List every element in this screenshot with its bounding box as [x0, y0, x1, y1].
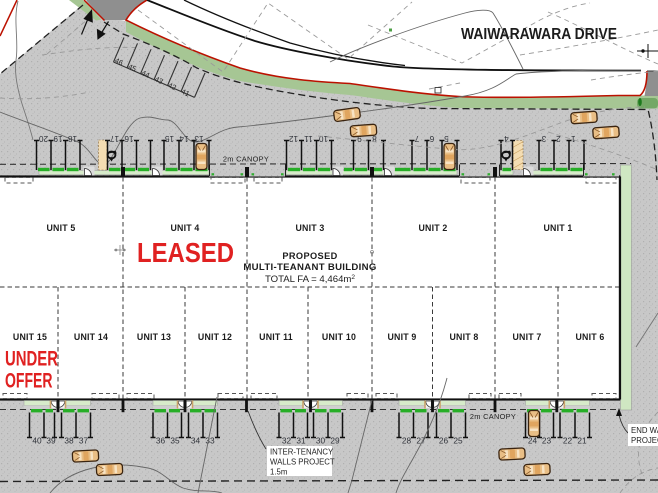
svg-text:30: 30 — [316, 436, 326, 446]
svg-text:13: 13 — [194, 134, 204, 143]
svg-text:6: 6 — [429, 134, 434, 143]
svg-text:UNIT 6: UNIT 6 — [575, 332, 604, 342]
svg-text:37: 37 — [79, 436, 89, 446]
svg-text:17: 17 — [110, 134, 120, 143]
svg-text:23: 23 — [542, 436, 552, 446]
svg-text:INTER-TENANCY: INTER-TENANCY — [270, 448, 334, 457]
svg-text:40: 40 — [32, 436, 42, 446]
svg-text:UNIT 5: UNIT 5 — [46, 223, 75, 233]
svg-text:19: 19 — [53, 134, 63, 143]
svg-text:31: 31 — [296, 436, 306, 446]
svg-text:16: 16 — [124, 134, 134, 143]
svg-text:10: 10 — [319, 134, 329, 143]
svg-text:5: 5 — [444, 134, 449, 143]
svg-text:UNIT 13: UNIT 13 — [137, 332, 171, 342]
svg-text:11: 11 — [304, 134, 313, 143]
svg-text:WAIWARAWARA DRIVE: WAIWARAWARA DRIVE — [461, 26, 617, 43]
svg-text:WALLS PROJECT: WALLS PROJECT — [270, 458, 335, 467]
svg-text:1: 1 — [571, 134, 576, 143]
svg-text:7: 7 — [414, 134, 419, 143]
svg-text:14: 14 — [179, 134, 189, 143]
svg-text:38: 38 — [64, 436, 74, 446]
svg-text:35: 35 — [170, 436, 180, 446]
svg-text:22: 22 — [563, 436, 573, 446]
svg-text:29: 29 — [330, 436, 340, 446]
svg-text:18: 18 — [68, 134, 78, 143]
svg-text:UNIT 7: UNIT 7 — [512, 332, 541, 342]
svg-text:1.5m: 1.5m — [270, 468, 287, 477]
svg-text:LEASED: LEASED — [137, 237, 234, 268]
svg-text:UNIT 2: UNIT 2 — [418, 223, 447, 233]
svg-text:OFFER: OFFER — [5, 369, 53, 393]
svg-text:UNIT 8: UNIT 8 — [449, 332, 478, 342]
svg-text:2m CANOPY: 2m CANOPY — [223, 154, 269, 163]
svg-text:UNIT 4: UNIT 4 — [170, 223, 199, 233]
svg-text:12: 12 — [289, 134, 299, 143]
svg-text:END WAL: END WAL — [631, 426, 658, 435]
svg-text:UNIT 15: UNIT 15 — [13, 332, 47, 342]
svg-text:25: 25 — [453, 436, 463, 446]
svg-text:21: 21 — [577, 436, 587, 446]
svg-text:26: 26 — [439, 436, 449, 446]
svg-text:UNIT 14: UNIT 14 — [74, 332, 108, 342]
svg-text:UNIT 3: UNIT 3 — [295, 223, 324, 233]
svg-text:MULTI-TEANANT BUILDING: MULTI-TEANANT BUILDING — [243, 262, 376, 273]
svg-text:15: 15 — [165, 134, 175, 143]
svg-text:TOTAL FA = 4,464m2: TOTAL FA = 4,464m2 — [265, 274, 355, 285]
svg-text:UNIT 1: UNIT 1 — [543, 223, 572, 233]
svg-text:20: 20 — [39, 134, 49, 143]
svg-text:34: 34 — [191, 436, 201, 446]
svg-text:3: 3 — [541, 134, 546, 143]
svg-text:UNIT 10: UNIT 10 — [322, 332, 356, 342]
svg-text:28: 28 — [402, 436, 412, 446]
svg-text:32: 32 — [282, 436, 292, 446]
svg-text:PROPOSED: PROPOSED — [282, 251, 337, 261]
svg-text:36: 36 — [156, 436, 166, 446]
svg-text:UNIT 11: UNIT 11 — [259, 332, 293, 342]
svg-text:UNIT 12: UNIT 12 — [198, 332, 232, 342]
svg-text:33: 33 — [205, 436, 215, 446]
svg-text:PROJECT: PROJECT — [631, 436, 658, 445]
svg-text:UNIT 9: UNIT 9 — [387, 332, 416, 342]
svg-text:39: 39 — [46, 436, 56, 446]
svg-text:2m CANOPY: 2m CANOPY — [470, 412, 516, 421]
svg-text:UNDER: UNDER — [5, 347, 58, 371]
